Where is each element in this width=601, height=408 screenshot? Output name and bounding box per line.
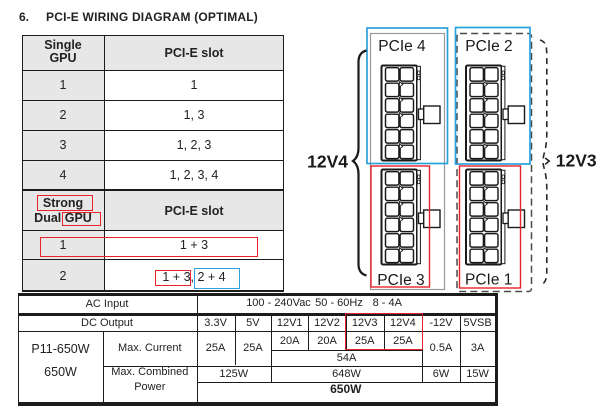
- svg-text:PCIe 3: PCIe 3: [377, 272, 424, 289]
- svg-text:PCIe 2: PCIe 2: [465, 38, 512, 55]
- svg-text:12V3: 12V3: [556, 151, 597, 171]
- svg-text:PCIe 4: PCIe 4: [378, 38, 426, 55]
- svg-text:12V4: 12V4: [307, 152, 348, 172]
- svg-text:PCIe 1: PCIe 1: [465, 272, 512, 289]
